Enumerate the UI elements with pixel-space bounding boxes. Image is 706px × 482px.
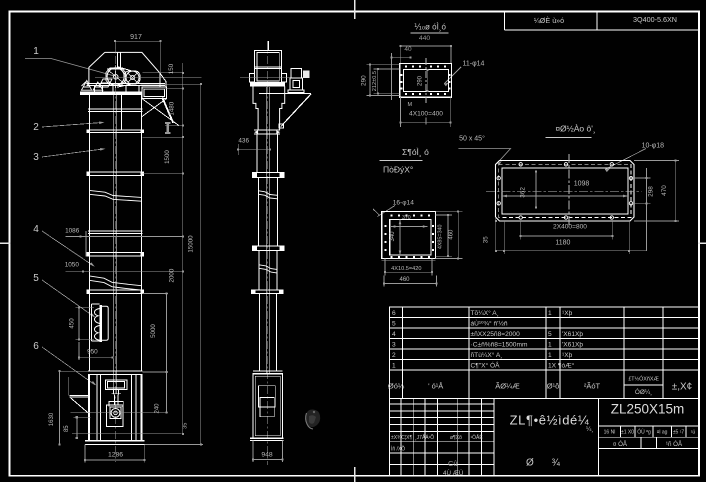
svg-text:1: 1 [548,352,552,359]
svg-text:450: 450 [69,318,76,329]
svg-text:Ø: Ø [526,458,534,469]
svg-text:460: 460 [399,277,410,283]
svg-text:¹Xþ: ¹Xþ [562,352,573,359]
svg-text:1X ¶óÆ°: 1X ¶óÆ° [548,362,575,370]
svg-text:1086: 1086 [65,227,80,234]
svg-text:1050: 1050 [65,261,80,268]
svg-text:3Q400-5.6XN: 3Q400-5.6XN [633,15,677,24]
svg-text:2000: 2000 [169,268,176,282]
svg-text:¹ÖÅÈ: ¹ÖÅÈ [471,434,484,441]
svg-text:5000: 5000 [150,324,157,338]
svg-text:1: 1 [548,342,552,349]
svg-text:1480: 1480 [169,101,176,115]
svg-text:40: 40 [404,46,412,53]
svg-text:1098: 1098 [574,180,590,187]
svg-text:ñTù¼X° A¸: ñTù¼X° A¸ [471,351,503,359]
svg-text:370: 370 [402,215,411,221]
svg-text:'X61Xþ: 'X61Xþ [562,342,583,349]
svg-text:948: 948 [261,452,273,459]
svg-text:M: M [408,102,413,108]
svg-text:2: 2 [392,352,396,359]
svg-text:212±0.5: 212±0.5 [372,71,378,91]
svg-text:Tõ¼X° A¸: Tõ¼X° A¸ [471,309,499,317]
svg-text:1: 1 [33,46,39,57]
svg-text:50 x 45°: 50 x 45° [459,135,485,143]
svg-text:6: 6 [33,341,39,352]
svg-text:5: 5 [33,273,39,284]
svg-text:362: 362 [520,187,527,198]
svg-text:5: 5 [392,321,396,328]
svg-text:Ø¹ô: Ø¹ô [547,382,560,391]
svg-text:'X61Xþ: 'X61Xþ [562,331,583,338]
svg-text:¹ñ ÓÅ: ¹ñ ÓÅ [666,441,683,448]
svg-text:¹Xþ: ¹Xþ [562,310,573,317]
svg-text:Σ¶óÌ¸ ó: Σ¶óÌ¸ ó [402,147,429,157]
svg-text:' ó¹Å: ' ó¹Å [428,382,443,391]
svg-text:440: 440 [419,35,431,42]
svg-text:¤l ag: ¤l ag [657,430,668,436]
svg-text:ø¶Xõ: ø¶Xõ [450,435,462,441]
svg-text:Øó¼: Øó¼ [388,382,405,391]
svg-text:£T½ÓXñXÆ: £T½ÓXñXÆ [628,376,659,383]
svg-text:240: 240 [155,403,161,414]
svg-text:4X100=400: 4X100=400 [409,111,443,118]
svg-text:4Ù ÆÙ: 4Ù ÆÙ [443,470,463,477]
svg-text:460: 460 [449,229,455,240]
svg-text:¸J7ÅÁ¹Õ: ¸J7ÅÁ¹Õ [415,434,434,441]
svg-text:ZL250X15m: ZL250X15m [611,402,685,417]
svg-text:±,X¢: ±,X¢ [672,382,693,393]
svg-text:290: 290 [361,75,368,86]
svg-text:¼¸: ¼¸ [586,426,594,433]
svg-text:2: 2 [33,122,39,133]
svg-text:11-φ14: 11-φ14 [463,61,485,68]
svg-text:1630: 1630 [49,412,55,426]
svg-text:436: 436 [238,138,249,145]
svg-text:C¶"X° ÓÅ: C¶"X° ÓÅ [471,361,501,370]
svg-text:290: 290 [418,75,424,86]
svg-text:4X85=340: 4X85=340 [438,224,444,249]
svg-text:470: 470 [661,185,668,196]
svg-text:16 Nl: 16 Nl [604,430,616,436]
svg-text:917: 917 [130,34,142,41]
svg-text:1180: 1180 [555,240,570,247]
svg-text:1286: 1286 [108,452,123,459]
svg-text:85: 85 [64,425,70,432]
svg-text:±1 X0: ±1 X0 [621,430,634,436]
svg-text:ÓØ¼¸: ÓØ¼¸ [635,387,652,396]
svg-text:±5 ¹7: ±5 ¹7 [673,430,685,436]
svg-text:áÙ¹º¾° ñ'½ñ: áÙ¹º¾° ñ'½ñ [471,319,508,328]
svg-text:ÃØ¼Æ: ÃØ¼Æ [495,382,520,391]
svg-text:¤ ÓÅ: ¤ ÓÅ [613,441,628,448]
svg-text:Ìñ /XÕ: Ìñ /XÕ [391,446,405,453]
svg-text:340: 340 [390,231,396,242]
svg-text:6: 6 [392,310,396,317]
svg-text:±X¾C¦X¶: ±X¾C¦X¶ [391,435,412,441]
svg-text:⅒ø óÌ¸ó: ⅒ø óÌ¸ó [414,23,446,32]
svg-text:¤Ø½Ào ô'¸: ¤Ø½Ào ô'¸ [555,124,595,134]
svg-text:²ÃóT: ²ÃóT [584,382,601,391]
svg-text:ZL¶•ê½ìdé¼: ZL¶•ê½ìdé¼ [510,413,590,428]
svg-text:4: 4 [392,331,396,338]
svg-text:5: 5 [548,331,552,338]
svg-text:1: 1 [392,363,396,370]
svg-text:950: 950 [87,349,98,356]
svg-text:2X400=800: 2X400=800 [553,224,587,231]
svg-text:ΠòÐýX°: ΠòÐýX° [383,165,413,175]
svg-text:Cû: Cû [448,459,458,468]
svg-text:±ñXX25ñ8=2000: ±ñXX25ñ8=2000 [471,331,521,338]
svg-text:1: 1 [548,310,552,317]
svg-text:298: 298 [648,186,655,197]
svg-text:10-φ18: 10-φ18 [642,142,665,149]
svg-text:¼ØÈ ù»ó: ¼ØÈ ù»ó [534,16,564,25]
svg-text:35: 35 [182,423,188,429]
svg-text:16-φ14: 16-φ14 [393,199,414,206]
svg-text:3: 3 [392,342,396,349]
svg-text:3: 3 [33,152,39,163]
svg-text:¹ú: ¹ú [691,430,696,436]
svg-text:4: 4 [33,224,39,235]
svg-text:ÓÙ ªg: ÓÙ ªg [637,429,651,436]
svg-text:1500: 1500 [164,150,171,164]
svg-text:4X10.5=420: 4X10.5=420 [391,266,421,272]
svg-text:·C±ñ%ñ8=1500mm: ·C±ñ%ñ8=1500mm [471,342,528,349]
svg-text:¾: ¾ [552,458,561,469]
svg-text:35: 35 [482,236,489,243]
svg-text:15000: 15000 [188,235,195,253]
